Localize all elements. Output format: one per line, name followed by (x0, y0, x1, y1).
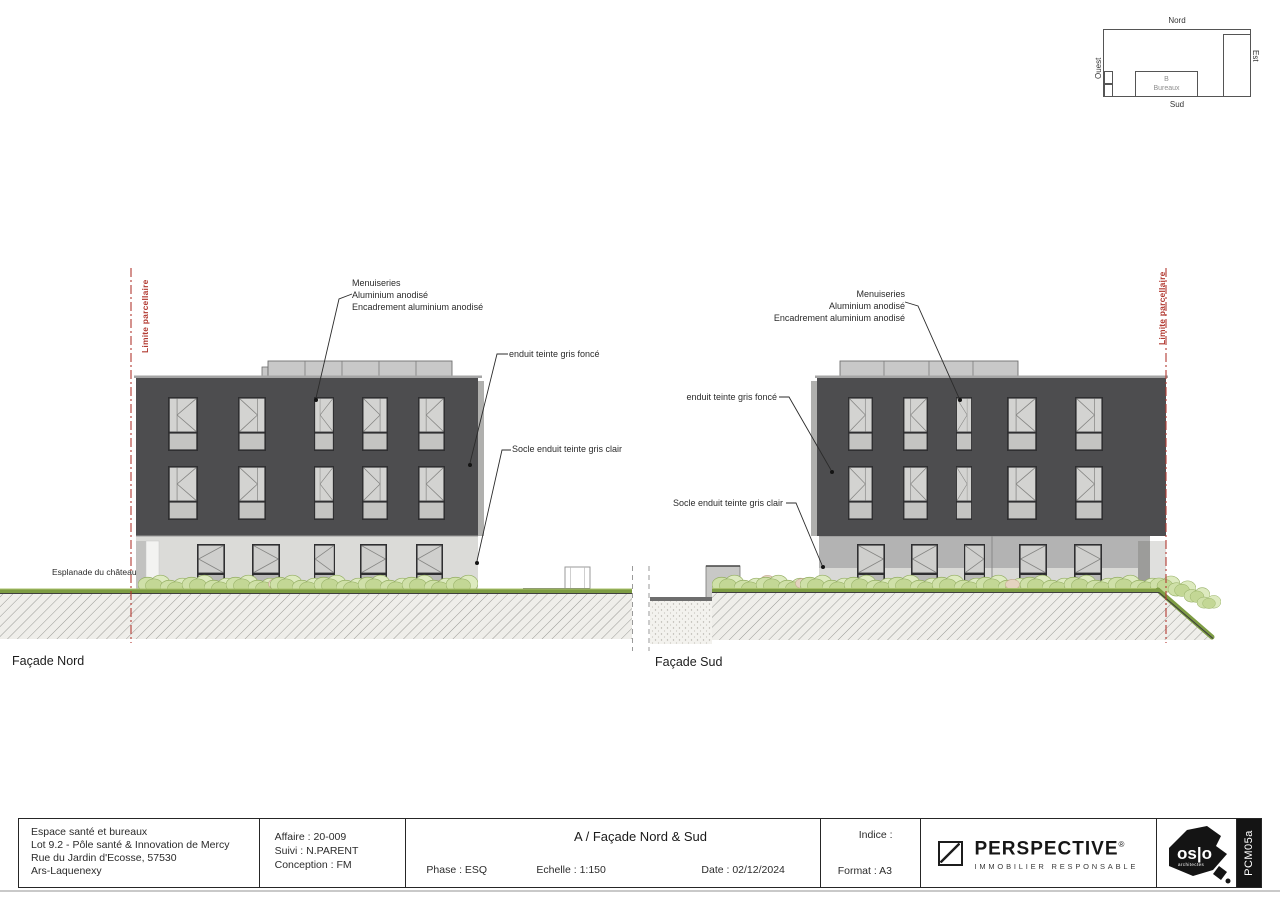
key-plan-north-label: Nord (1103, 16, 1251, 25)
grass (0, 589, 632, 594)
project-line: Ars-Laquenexy (31, 865, 259, 878)
oslo-sub: architectes (1178, 862, 1205, 867)
key-plan-south-label: Sud (1103, 100, 1251, 109)
date-value: Date : 02/12/2024 (701, 864, 784, 876)
format-value: Format : A3 (838, 865, 892, 877)
perspective-logo-icon (938, 841, 963, 866)
perspective-tagline: IMMOBILIER RESPONSABLE (974, 862, 1138, 871)
coping (815, 376, 1168, 379)
roof-band (268, 361, 452, 378)
sud-menuiseries-note: Menuiseries Aluminium anodisé Encadremen… (765, 288, 905, 324)
note-line: Menuiseries (765, 288, 905, 300)
suivi-line: Suivi : N.PARENT (275, 844, 406, 858)
echelle-value: Echelle : 1:150 (536, 864, 605, 876)
note-line: Aluminium anodisé (352, 289, 483, 301)
nord-enduit-note: enduit teinte gris foncé (509, 348, 600, 360)
oslo-logo-icon: os|o architectes (1161, 822, 1233, 884)
key-plan-small-box-1 (1104, 71, 1113, 84)
key-plan-west-label: Ouest (1094, 58, 1103, 79)
conception-line: Conception : FM (275, 858, 406, 872)
perspective-logo-text: PERSPECTIVE® IMMOBILIER RESPONSABLE (974, 835, 1138, 870)
facade-nord-title: Façade Nord (12, 654, 84, 668)
sud-socle-note: Socle enduit teinte gris clair (643, 497, 783, 509)
title-block-project: Espace santé et bureaux Lot 9.2 - Pôle s… (19, 819, 259, 887)
indice-value: Indice : (859, 829, 893, 841)
title-block: Espace santé et bureaux Lot 9.2 - Pôle s… (18, 818, 1262, 888)
page-edge-line (0, 890, 1280, 892)
registered-mark: ® (1119, 840, 1126, 849)
drawing-title: A / Façade Nord & Sud (461, 829, 819, 844)
key-plan-small-box-2 (1104, 84, 1113, 97)
key-plan-building-name: Bureaux (1136, 85, 1197, 94)
note-line: Aluminium anodisé (765, 300, 905, 312)
note-line: Encadrement aluminium anodisé (352, 301, 483, 313)
sud-limite-parcellaire: Limite parcellaire (1157, 271, 1167, 345)
break-lines (633, 566, 650, 651)
elevation-drawings-canvas (0, 260, 1280, 660)
title-block-affaire: Affaire : 20-009 Suivi : N.PARENT Concep… (259, 819, 406, 887)
esplanade-label: Esplanade du château (52, 566, 137, 578)
drawing-sheet: B Bureaux Nord Sud Ouest Est (0, 0, 1280, 904)
phase-value: Phase : ESQ (426, 864, 487, 876)
coping (134, 376, 482, 379)
title-block-main: A / Façade Nord & Sud Phase : ESQ Echell… (405, 819, 819, 887)
perspective-name: PERSPECTIVE (974, 839, 1118, 860)
lower-ground (650, 601, 712, 644)
sheet-code: PCM05a (1243, 830, 1255, 876)
key-plan-building-east (1223, 34, 1251, 97)
title-block-indice: Indice : Format : A3 (820, 819, 920, 887)
note-line: Encadrement aluminium anodisé (765, 312, 905, 324)
key-plan-east-label: Est (1251, 50, 1260, 62)
sud-enduit-note: enduit teinte gris foncé (637, 391, 777, 403)
facade-nord-drawing (0, 268, 632, 643)
note-line: Menuiseries (352, 277, 483, 289)
lower-path-strip (650, 597, 712, 601)
facade-return (478, 381, 484, 536)
affaire-line: Affaire : 20-009 (275, 830, 406, 844)
oslo-logo: os|o architectes (1156, 819, 1236, 887)
sheet-code-bar: PCM05a (1236, 819, 1261, 887)
perspective-logo: PERSPECTIVE® IMMOBILIER RESPONSABLE (920, 819, 1157, 887)
project-line: Lot 9.2 - Pôle santé & Innovation de Mer… (31, 839, 259, 852)
key-plan: B Bureaux (1103, 29, 1251, 97)
ground-hatch (0, 594, 632, 640)
facade-sud-drawing (650, 268, 1221, 644)
key-plan-building-letter: B (1136, 76, 1197, 85)
facade-sud-title: Façade Sud (655, 655, 722, 669)
facade-return (811, 381, 817, 536)
key-plan-building-b: B Bureaux (1135, 71, 1198, 97)
nord-socle-note: Socle enduit teinte gris clair (512, 443, 622, 455)
project-line: Rue du Jardin d'Ecosse, 57530 (31, 852, 259, 865)
project-line: Espace santé et bureaux (31, 826, 259, 839)
ground-hatch (712, 593, 1213, 641)
oslo-name: os|o (1177, 844, 1212, 863)
nord-menuiseries-note: Menuiseries Aluminium anodisé Encadremen… (352, 277, 483, 313)
nord-limite-parcellaire: Limite parcellaire (140, 279, 150, 353)
gate-frame (565, 567, 590, 589)
